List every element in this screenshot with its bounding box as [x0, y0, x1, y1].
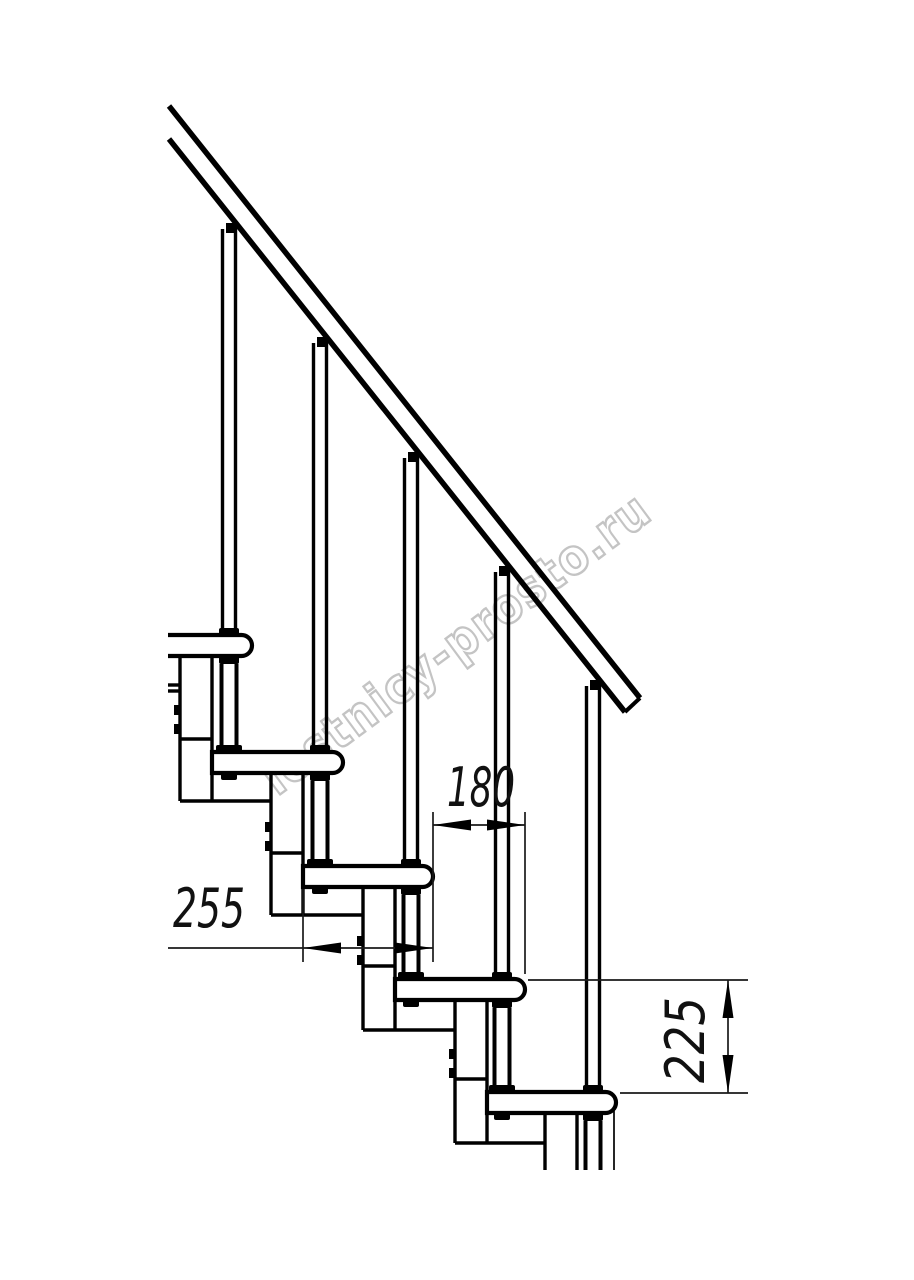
leg-foot [216, 745, 242, 753]
tread-2 [212, 752, 343, 773]
drawing-page: lestnicy-prosto.ru [0, 0, 914, 1280]
leg-collar [219, 656, 239, 664]
leg-collar [492, 1000, 512, 1008]
bolt-nut [494, 1113, 510, 1120]
staircase-drawing: lestnicy-prosto.ru [0, 0, 914, 1280]
leg-collar [401, 887, 421, 895]
bolt-nut [403, 1000, 419, 1007]
bolt-nut [221, 773, 237, 780]
leg-foot [398, 972, 424, 980]
dim-label-180: 180 [447, 756, 515, 819]
dim-label-255: 255 [173, 877, 245, 940]
tread-3 [303, 866, 433, 887]
tread-1 [168, 635, 252, 656]
leg-collar [310, 773, 330, 781]
bolt-nut [312, 887, 328, 894]
tread-4 [395, 979, 525, 1000]
dim-label-225: 225 [654, 997, 717, 1083]
leg-collar [583, 1113, 603, 1121]
leg-foot [307, 859, 333, 867]
tread-5 [487, 1092, 616, 1113]
leg-foot [489, 1085, 515, 1093]
